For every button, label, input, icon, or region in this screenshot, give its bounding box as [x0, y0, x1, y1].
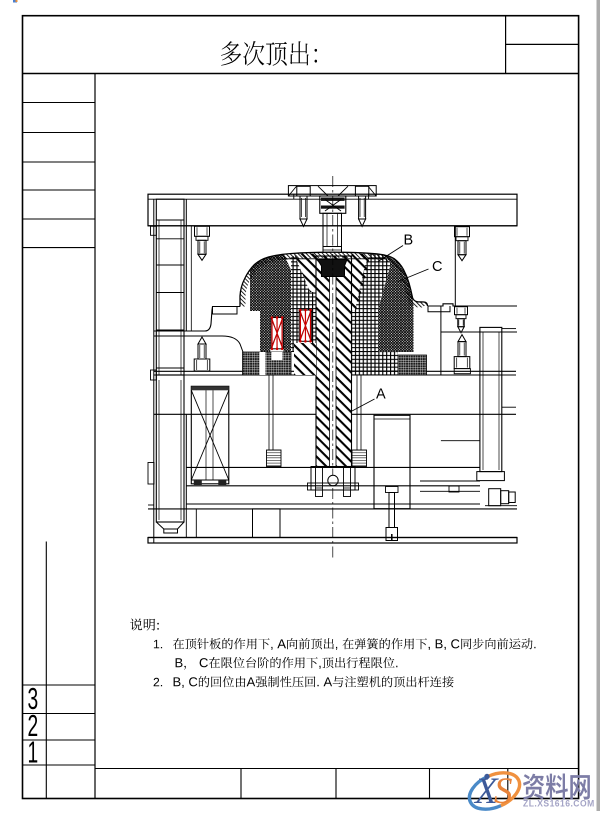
svg-text:1: 1 [28, 736, 39, 770]
svg-text:A: A [376, 387, 386, 403]
svg-text:B: B [404, 233, 414, 249]
svg-text:ZL.XS1616.COM: ZL.XS1616.COM [523, 798, 595, 808]
svg-text:S: S [494, 771, 513, 812]
svg-text:C: C [432, 259, 442, 275]
